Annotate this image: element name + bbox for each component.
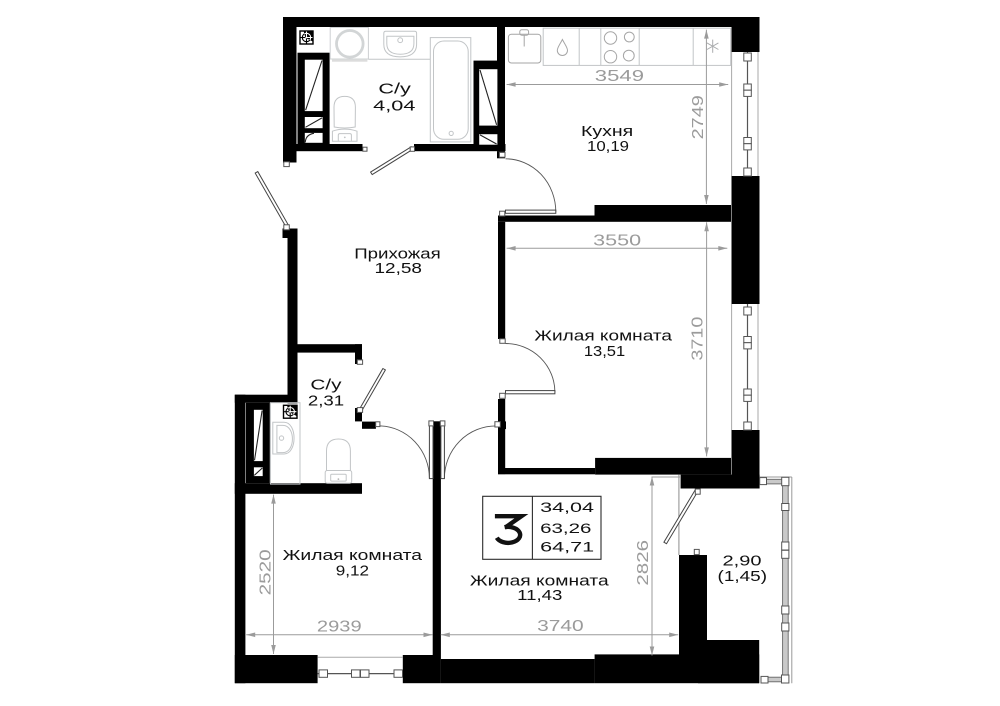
svg-text:2,90: 2,90 bbox=[723, 552, 762, 569]
svg-text:34,04: 34,04 bbox=[540, 500, 594, 516]
svg-text:2520: 2520 bbox=[257, 549, 274, 595]
svg-text:(1,45): (1,45) bbox=[718, 568, 768, 585]
svg-text:9,12: 9,12 bbox=[336, 563, 369, 580]
svg-text:С/у: С/у bbox=[378, 81, 411, 98]
svg-text:Жилая комната: Жилая комната bbox=[283, 547, 423, 564]
svg-text:3550: 3550 bbox=[593, 233, 641, 250]
svg-text:3549: 3549 bbox=[595, 68, 644, 85]
svg-text:64,71: 64,71 bbox=[540, 539, 594, 555]
svg-text:12,58: 12,58 bbox=[375, 260, 422, 277]
svg-text:63,26: 63,26 bbox=[540, 521, 591, 537]
svg-text:2749: 2749 bbox=[690, 95, 707, 139]
svg-text:11,43: 11,43 bbox=[517, 587, 562, 604]
svg-text:10,19: 10,19 bbox=[587, 138, 629, 155]
svg-text:2,31: 2,31 bbox=[308, 393, 344, 410]
svg-text:2939: 2939 bbox=[317, 619, 362, 636]
svg-text:4,04: 4,04 bbox=[373, 98, 415, 115]
svg-text:13,51: 13,51 bbox=[584, 343, 625, 360]
svg-text:2826: 2826 bbox=[635, 540, 652, 586]
svg-text:3710: 3710 bbox=[689, 316, 706, 360]
svg-text:3740: 3740 bbox=[537, 618, 584, 635]
svg-text:С/у: С/у bbox=[310, 376, 342, 393]
